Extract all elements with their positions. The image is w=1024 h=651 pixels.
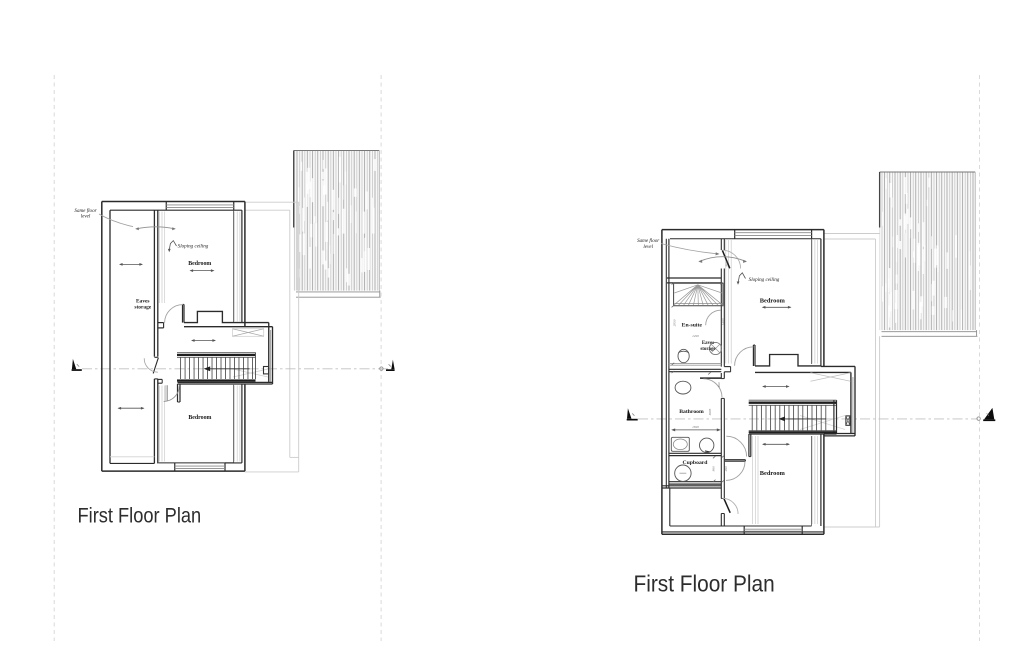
svg-text:1690: 1690: [692, 425, 699, 429]
svg-text:Bathroom: Bathroom: [679, 409, 704, 415]
svg-text:Cupboard: Cupboard: [683, 460, 709, 466]
svg-text:En-suite: En-suite: [682, 322, 703, 328]
svg-text:storage: storage: [134, 305, 151, 311]
svg-text:Bedroom: Bedroom: [760, 470, 786, 477]
svg-text:First Floor Plan: First Floor Plan: [634, 571, 775, 597]
svg-text:3685: 3685: [708, 408, 712, 415]
svg-text:Bedroom: Bedroom: [188, 415, 211, 421]
svg-text:260: 260: [724, 466, 728, 471]
svg-text:Sloping ceiling: Sloping ceiling: [178, 244, 209, 250]
svg-text:level: level: [643, 244, 653, 250]
svg-text:860: 860: [712, 466, 716, 471]
svg-text:360: 360: [717, 382, 721, 387]
svg-text:860: 860: [725, 261, 729, 266]
svg-text:1490: 1490: [692, 334, 699, 338]
svg-text:Eaves: Eaves: [702, 341, 714, 346]
svg-text:First Floor Plan: First Floor Plan: [78, 503, 202, 527]
svg-text:2850: 2850: [672, 319, 676, 326]
svg-text:Eaves: Eaves: [136, 298, 149, 304]
svg-text:storage: storage: [700, 347, 716, 352]
svg-text:Bedroom: Bedroom: [188, 261, 211, 267]
svg-text:level: level: [81, 214, 91, 220]
svg-text:Bedroom: Bedroom: [760, 298, 786, 305]
svg-text:1400: 1400: [721, 318, 725, 325]
svg-text:Sloping ceiling: Sloping ceiling: [749, 277, 780, 283]
